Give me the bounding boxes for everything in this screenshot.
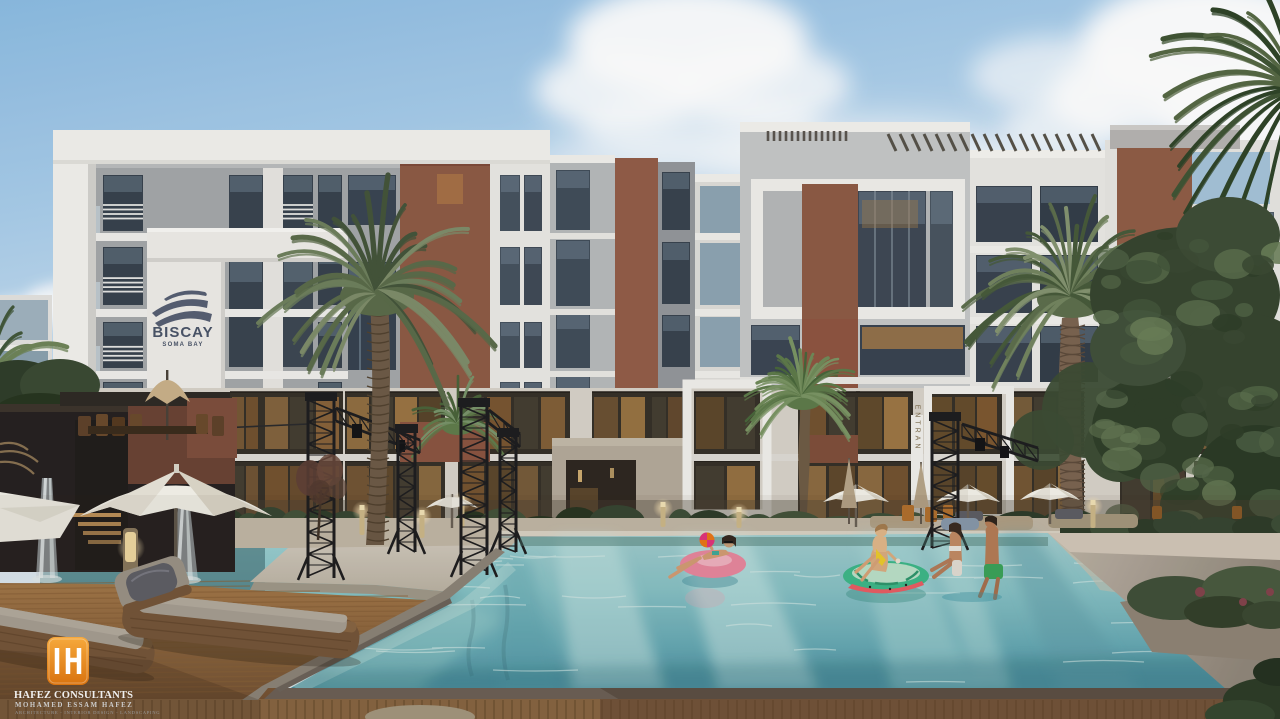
svg-text:MOHAMED ESSAM HAFEZ: MOHAMED ESSAM HAFEZ	[15, 702, 133, 709]
svg-text:ARCHITECTURE - INTERIOR DESIGN: ARCHITECTURE - INTERIOR DESIGN - LANDSCA…	[15, 710, 160, 715]
svg-text:HAFEZ CONSULTANTS: HAFEZ CONSULTANTS	[14, 690, 133, 701]
